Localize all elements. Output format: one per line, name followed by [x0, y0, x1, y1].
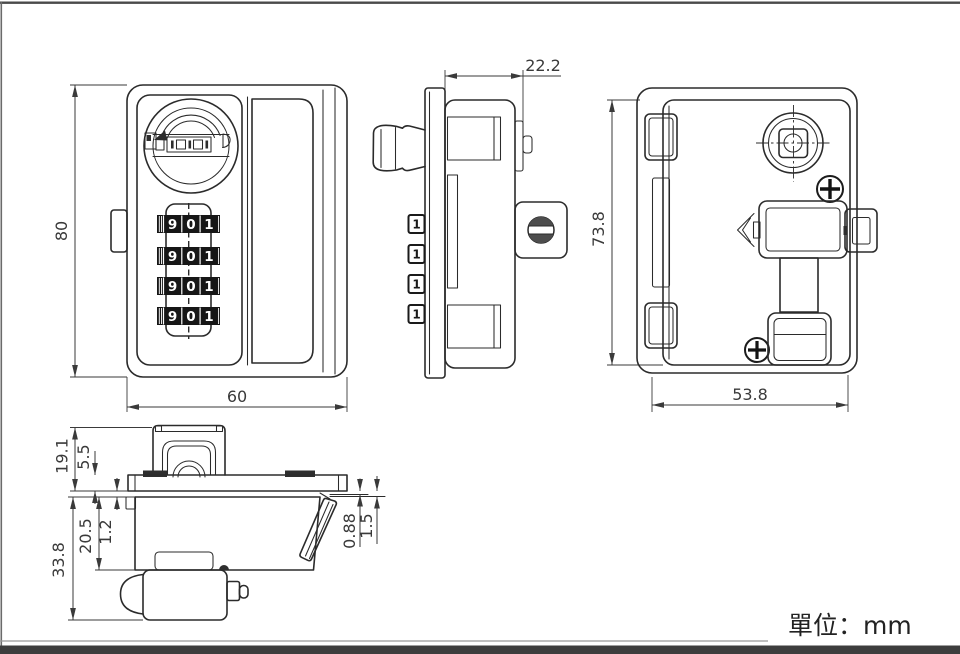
svg-text:0: 0 — [186, 249, 195, 265]
top-knob — [153, 426, 225, 478]
svg-text:1: 1 — [412, 278, 420, 292]
front-dial-circle — [144, 99, 238, 193]
svg-text:1: 1 — [412, 218, 420, 232]
code-window-marks — [171, 140, 208, 149]
back-dim-width: 53.8 — [652, 375, 848, 412]
side-body — [445, 100, 515, 368]
dial-wheel: 1 — [409, 245, 425, 263]
unit-label: 單位：mm — [788, 611, 912, 640]
front-view: 80 60 — [52, 85, 347, 412]
svg-text:1: 1 — [204, 309, 213, 325]
dial-row: 9 0 1 — [157, 215, 220, 233]
back-panel — [663, 100, 850, 365]
top-latch-slant — [300, 498, 336, 560]
side-view: 22.2 1 1 1 1 — [373, 56, 567, 378]
dial-wheel: 1 — [409, 275, 425, 293]
dial-row: 9 0 1 — [157, 307, 220, 325]
front-dim-width-label: 60 — [227, 387, 247, 406]
side-backplate — [425, 88, 445, 378]
bottom-catch — [768, 313, 831, 365]
top-housing — [121, 565, 249, 620]
svg-text:33.8: 33.8 — [49, 542, 68, 578]
svg-text:9: 9 — [168, 309, 177, 325]
phillips-screw-icon — [745, 338, 769, 362]
front-dial-rows: 9 0 1 9 0 1 9 0 1 — [157, 203, 220, 339]
side-dial-wheels: 1 1 1 1 — [409, 215, 425, 323]
side-dim-depth: 22.2 — [445, 56, 561, 133]
front-wing — [252, 99, 313, 363]
top-view: 19.1 5.5 33.8 20.5 1.2 0.88 — [49, 426, 385, 621]
back-dim-height: 73.8 — [589, 100, 663, 365]
svg-text:1.5: 1.5 — [357, 513, 376, 538]
dial-row: 9 0 1 — [157, 247, 220, 265]
svg-text:20.5: 20.5 — [76, 518, 95, 554]
svg-text:9: 9 — [168, 249, 177, 265]
bottom-bar — [0, 646, 960, 654]
side-dim-depth-label: 22.2 — [525, 56, 561, 75]
svg-text:1: 1 — [204, 217, 213, 233]
dial-wheel: 1 — [409, 305, 425, 323]
svg-text:1: 1 — [204, 249, 213, 265]
svg-text:1: 1 — [412, 308, 420, 322]
front-dim-height-label: 80 — [52, 221, 71, 241]
push-clip-icon — [738, 214, 755, 247]
technical-drawing: 80 60 — [0, 0, 960, 654]
svg-text:0: 0 — [186, 309, 195, 325]
back-hinge-bottom — [645, 303, 677, 348]
front-dim-height: 80 — [52, 85, 127, 377]
latch-post — [780, 258, 818, 312]
back-dim-height-label: 73.8 — [589, 211, 608, 247]
svg-text:19.1: 19.1 — [53, 438, 72, 474]
svg-text:9: 9 — [168, 279, 177, 295]
svg-text:1.2: 1.2 — [96, 519, 115, 544]
top-flange — [128, 471, 385, 497]
front-left-tab — [111, 210, 127, 252]
back-hinge-top — [645, 114, 677, 160]
top-dim-total-height: 33.8 — [49, 497, 143, 620]
top-dim-knob-height: 19.1 — [53, 428, 153, 492]
dial-wheel: 1 — [409, 215, 425, 233]
side-latch-plate — [515, 202, 567, 258]
svg-text:1: 1 — [412, 248, 420, 262]
top-body — [126, 493, 336, 570]
svg-text:0: 0 — [186, 279, 195, 295]
back-cam-boss — [756, 105, 831, 182]
svg-text:5.5: 5.5 — [74, 444, 93, 469]
svg-text:0: 0 — [186, 217, 195, 233]
phillips-screw-icon — [817, 176, 843, 202]
back-view: 73.8 53.8 — [589, 88, 877, 412]
dial-row: 9 0 1 — [157, 277, 220, 295]
svg-text:1: 1 — [204, 279, 213, 295]
svg-text:9: 9 — [168, 217, 177, 233]
top-dim-cap-height: 5.5 — [74, 444, 95, 504]
back-dim-width-label: 53.8 — [732, 385, 768, 404]
drawing-sheet: 80 60 — [0, 0, 960, 654]
front-dim-width: 60 — [127, 377, 347, 412]
